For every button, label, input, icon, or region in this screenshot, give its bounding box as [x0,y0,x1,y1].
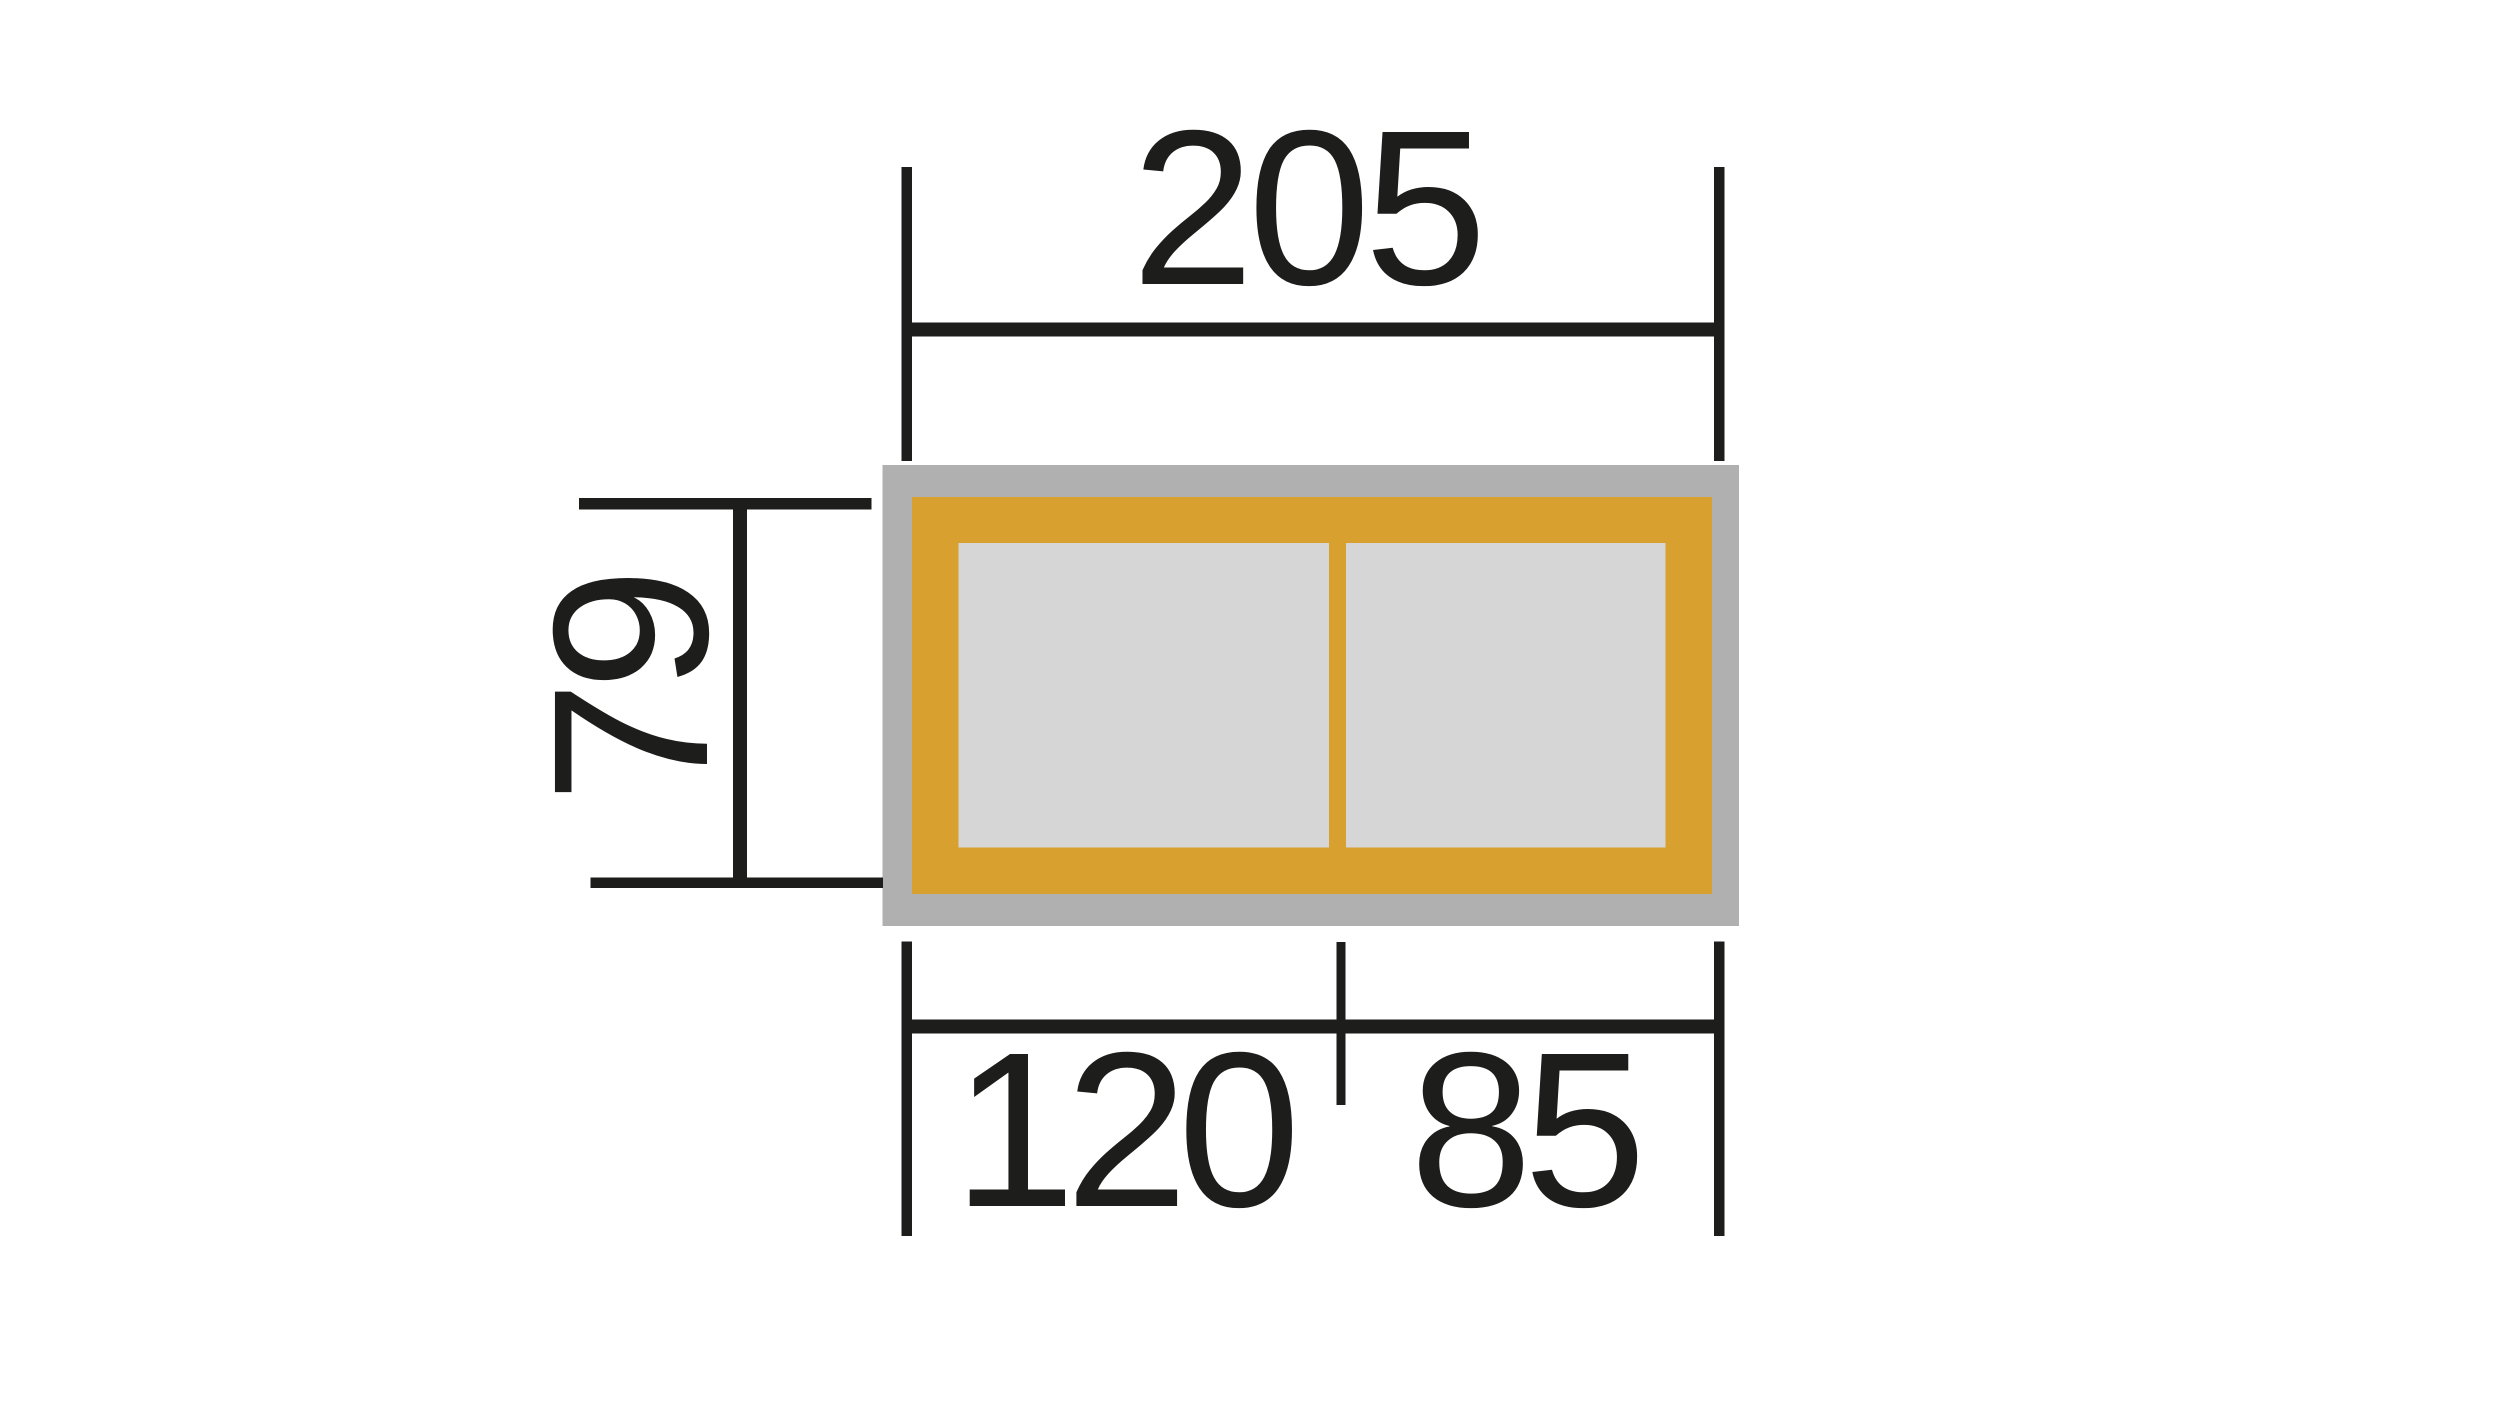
svg-text:79: 79 [507,578,754,804]
svg-text:85: 85 [1410,1006,1638,1253]
svg-text:120: 120 [953,1006,1293,1253]
svg-text:205: 205 [1131,84,1480,331]
